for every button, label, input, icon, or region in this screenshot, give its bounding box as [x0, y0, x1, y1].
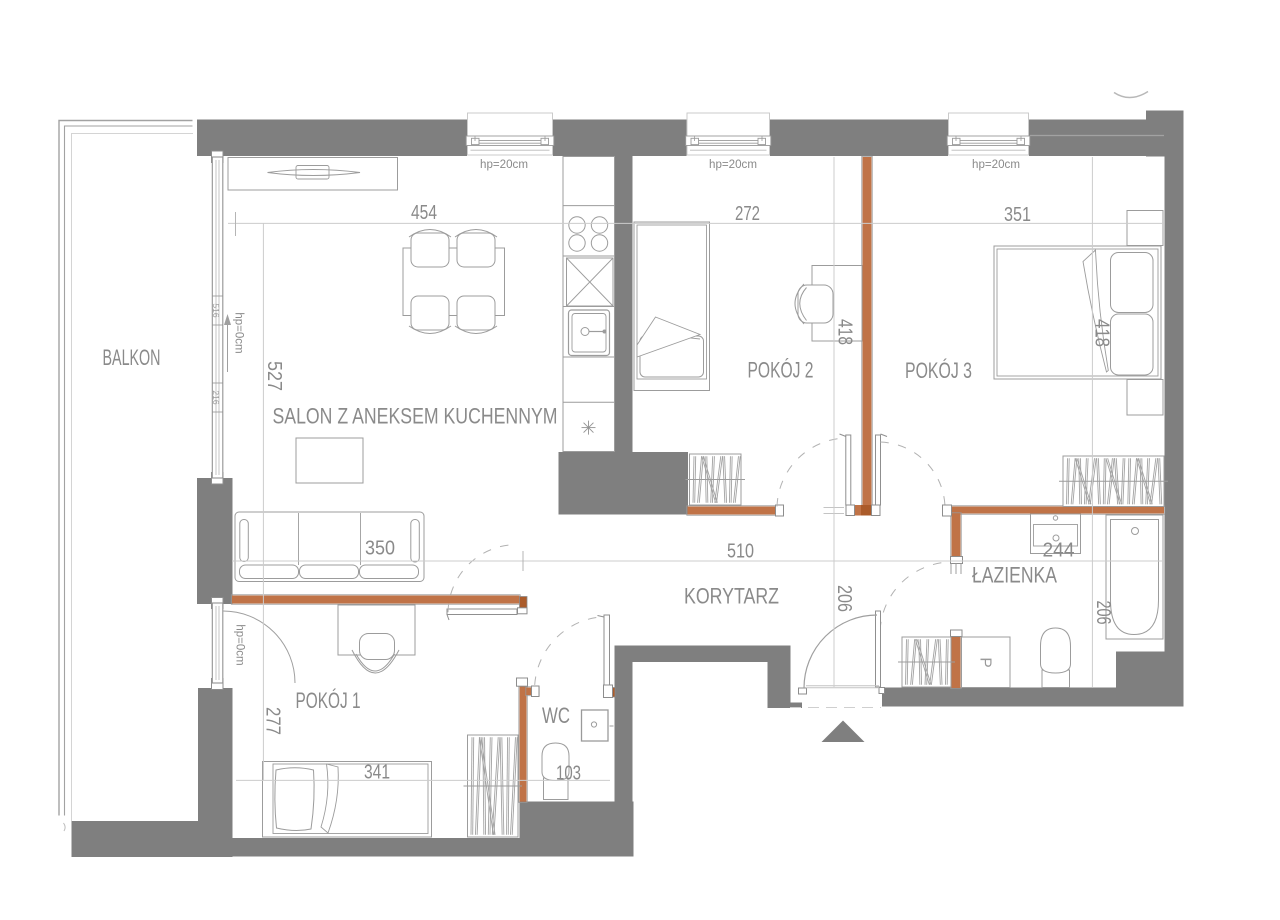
svg-text:hp=20cm: hp=20cm — [972, 159, 1020, 171]
svg-text:POKÓJ 2: POKÓJ 2 — [748, 358, 814, 383]
svg-text:350: 350 — [365, 538, 395, 560]
svg-text:hp=20cm: hp=20cm — [480, 159, 528, 171]
svg-text:KORYTARZ: KORYTARZ — [684, 584, 779, 609]
svg-text:WC: WC — [542, 703, 570, 728]
svg-text:277: 277 — [262, 707, 284, 735]
svg-text:POKÓJ 1: POKÓJ 1 — [296, 688, 361, 713]
svg-text:hp=0cm: hp=0cm — [234, 624, 246, 665]
svg-text:216: 216 — [211, 390, 221, 404]
svg-text:206: 206 — [833, 585, 855, 612]
svg-text:516: 516 — [211, 303, 221, 317]
svg-text:POKÓJ 3: POKÓJ 3 — [905, 358, 972, 383]
svg-text:ŁAZIENKA: ŁAZIENKA — [972, 563, 1057, 588]
svg-text:BALKON: BALKON — [103, 345, 161, 370]
svg-text:P: P — [977, 657, 994, 667]
svg-text:206: 206 — [1092, 601, 1114, 625]
svg-text:510: 510 — [727, 541, 754, 563]
svg-text:341: 341 — [364, 762, 390, 784]
svg-text:272: 272 — [735, 203, 760, 225]
svg-text:454: 454 — [411, 202, 437, 224]
svg-text:244: 244 — [1043, 540, 1075, 562]
svg-text:103: 103 — [556, 763, 581, 785]
svg-text:351: 351 — [1004, 204, 1031, 226]
svg-text:418: 418 — [834, 319, 856, 345]
svg-text:hp=20cm: hp=20cm — [709, 159, 757, 171]
svg-text:SALON Z ANEKSEM KUCHENNYM: SALON Z ANEKSEM KUCHENNYM — [273, 404, 558, 429]
svg-text:hp=0cm: hp=0cm — [233, 312, 245, 353]
svg-text:418: 418 — [1091, 319, 1113, 347]
svg-text:527: 527 — [263, 361, 285, 391]
